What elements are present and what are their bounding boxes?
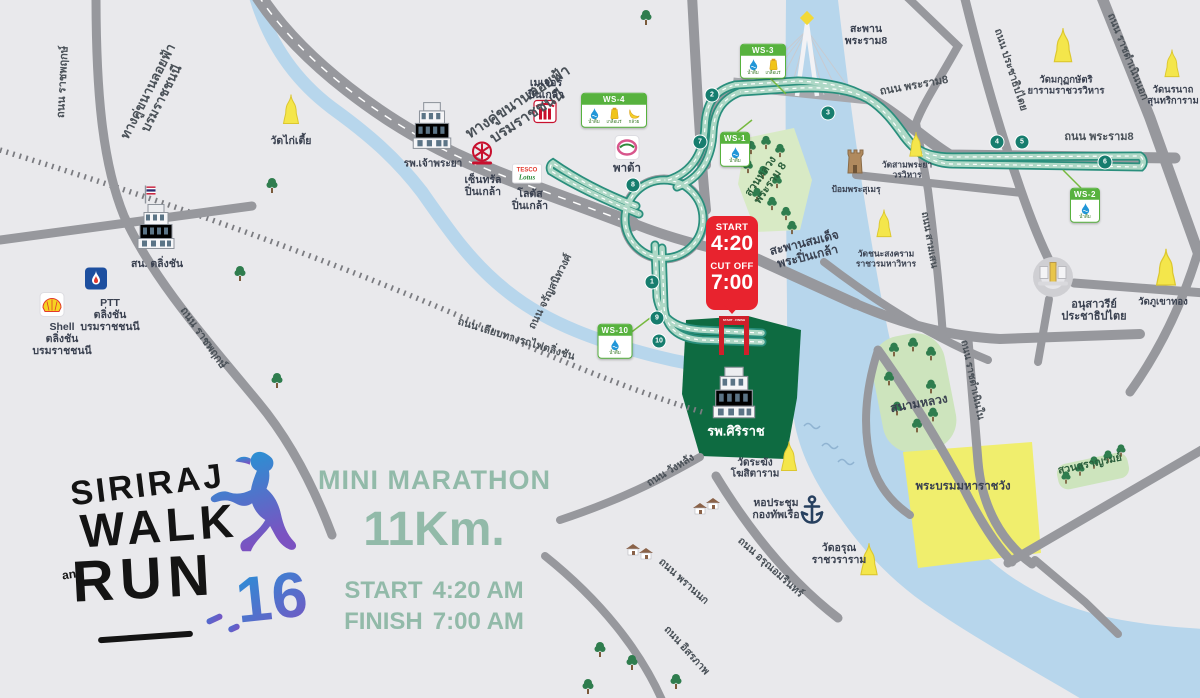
label-shell-station: Shellตลิ่งชันบรมราชชนนี <box>32 322 91 358</box>
wat-chanasongkhram-temple-icon <box>873 209 896 244</box>
tree-icon <box>926 346 937 367</box>
shell-icon <box>39 292 65 323</box>
tree-icon <box>626 654 638 676</box>
label-lotus-pinklao: โลตัสปิ่นเกล้า <box>512 189 548 213</box>
water-station-ws-2: WS-2น้ำดื่ม <box>1070 188 1100 223</box>
tree-icon <box>640 9 652 31</box>
wat-noranat-temple-icon <box>1161 49 1184 84</box>
phra-sumen-fort-icon <box>845 148 865 180</box>
event-start-time: START 4:20 AM <box>318 577 550 605</box>
km-marker-4: 4 <box>990 135 1005 150</box>
label-phra-sumen-fort: ป้อมพระสุเมรุ <box>831 185 880 195</box>
label-grand-palace: พระบรมมหาราชวัง <box>915 481 1010 494</box>
tree-icon <box>889 342 900 363</box>
km-marker-9: 9 <box>650 311 665 326</box>
start-time-value: 4:20 AM <box>433 577 524 605</box>
tree-icon <box>234 265 246 287</box>
water-icon: น้ำดื่ม <box>726 146 744 164</box>
wat-samphraya-temple-icon <box>906 131 926 163</box>
label-chaophraya-hospital: รพ.เจ้าพระยา <box>404 158 462 169</box>
road-label-rama8-east: ถนน พระราม8 <box>1064 131 1133 143</box>
tree-icon <box>594 641 606 663</box>
tree-icon <box>767 196 778 216</box>
label-major-pinklao: เมเจอร์ปิ่นเกล้า <box>528 78 564 102</box>
tree-icon <box>912 418 923 439</box>
pata-icon <box>614 135 640 166</box>
tree-icon <box>884 371 895 392</box>
water-station-ws-1: WS-1น้ำดื่ม <box>720 132 750 167</box>
label-wat-chanasongkhram: วัดชนะสงครามราชวรมหาวิหาร <box>856 249 916 268</box>
water-station-ws-3: WS-3น้ำดื่มเกลือแร่ <box>740 44 786 79</box>
tree-icon <box>670 673 682 695</box>
label-wat-phukhaothong: วัดภูเขาทอง <box>1138 298 1187 309</box>
siriraj-walk-run-route-map: START 4:20 CUT OFF 7:00 START - FINISH S… <box>0 0 1200 698</box>
tree-icon <box>761 135 772 155</box>
label-wat-kai-tia: วัดไก่เตี้ย <box>271 136 312 148</box>
tree-icon <box>271 372 283 394</box>
water-icon: น้ำดื่ม <box>744 58 762 76</box>
wat-rakhang-temple-icon <box>777 441 801 478</box>
tree-icon <box>582 678 594 698</box>
cutoff-time: 7:00 <box>706 272 758 294</box>
water-station-id: WS-10 <box>599 325 632 336</box>
navy-anchor-icon <box>798 495 826 532</box>
water-icon: น้ำดื่ม <box>585 107 603 125</box>
label-navy-hall: หอประชุมกองทัพเรือ <box>752 498 799 522</box>
chaophraya-hospital-building-icon <box>411 101 453 156</box>
water-station-id: WS-1 <box>721 133 749 144</box>
km-marker-3: 3 <box>821 106 836 121</box>
finish-time-label: FINISH <box>344 608 423 636</box>
label-pata: พาต้า <box>613 163 641 176</box>
km-marker-7: 7 <box>693 135 708 150</box>
label-wat-arun: วัดอรุณราชวราราม <box>812 543 867 567</box>
label-wat-samphraya: วัดสามพระยาวรวิหาร <box>882 160 932 179</box>
start-finish-gate-icon: START - FINISH <box>719 316 749 356</box>
siriraj-hospital-building-icon <box>711 365 757 425</box>
water-station-ws-10: WS-10น้ำดื่ม <box>598 324 633 359</box>
police-station-building-icon <box>136 203 176 256</box>
km-marker-1: 1 <box>645 275 660 290</box>
label-rama8-bridge: สะพานพระราม8 <box>845 24 888 48</box>
lotus-icon: TESCOLotus <box>512 164 542 189</box>
event-finish-time: FINISH 7:00 AM <box>318 608 550 636</box>
wat-phukhaothong-temple-icon <box>1151 248 1181 293</box>
start-cutoff-badge: START 4:20 CUT OFF 7:00 <box>706 216 758 310</box>
house-icon <box>638 547 654 565</box>
label-central-pinklao: เซ็นทรัลปิ่นเกล้า <box>465 175 502 199</box>
thai-flag-icon <box>144 186 157 209</box>
finish-time-value: 7:00 AM <box>433 608 524 636</box>
water-icon: น้ำดื่ม <box>606 338 624 356</box>
label-wat-noranat: วัดนรนาถสุนทริการาม <box>1147 85 1198 106</box>
wat-makut-temple-icon <box>1049 27 1077 69</box>
water-station-ws-4: WS-4น้ำดื่มเกลือแร่กล้วย <box>581 93 647 128</box>
wat-kai-tia-temple-icon <box>279 94 303 131</box>
km-marker-10: 10 <box>652 334 667 349</box>
km-marker-2: 2 <box>705 88 720 103</box>
tree-icon <box>266 177 278 199</box>
km-marker-8: 8 <box>626 178 641 193</box>
event-distance: 11Km. <box>318 502 550 557</box>
electrolyte-icon: เกลือแร่ <box>605 107 623 125</box>
start-time: 4:20 <box>706 233 758 255</box>
start-time-label: START <box>344 577 422 605</box>
water-station-id: WS-4 <box>582 94 646 105</box>
electrolyte-icon: เกลือแร่ <box>764 58 782 76</box>
label-wat-makut: วัดมกุฏกษัตริยารามราชวรวิหาร <box>1028 75 1105 96</box>
svg-text:Lotus: Lotus <box>518 174 536 182</box>
label-taling-chan-police: สน. ตลิ่งชัน <box>131 259 183 271</box>
ptt-icon <box>84 267 108 296</box>
label-siriraj-hospital: รพ.ศิริราช <box>707 425 765 440</box>
km-marker-5: 5 <box>1015 135 1030 150</box>
runner-silhouette <box>192 448 317 568</box>
banana-icon: กล้วย <box>625 107 643 125</box>
tree-icon <box>908 337 919 358</box>
km-marker-6: 6 <box>1098 155 1113 170</box>
label-wat-rakhang: วัดระฆังโฆสิตาราม <box>731 458 780 481</box>
tree-icon <box>928 407 939 428</box>
water-station-id: WS-2 <box>1071 189 1099 200</box>
event-type: MINI MARATHON <box>318 465 550 496</box>
logo-16: 16 <box>232 556 311 637</box>
water-station-id: WS-3 <box>741 45 785 56</box>
house-icon <box>705 497 721 515</box>
democracy-monument-icon <box>1036 257 1070 296</box>
label-democracy-monument: อนุสาวรีย์ประชาธิปไตย <box>1061 299 1126 324</box>
water-icon: น้ำดื่ม <box>1076 202 1094 220</box>
